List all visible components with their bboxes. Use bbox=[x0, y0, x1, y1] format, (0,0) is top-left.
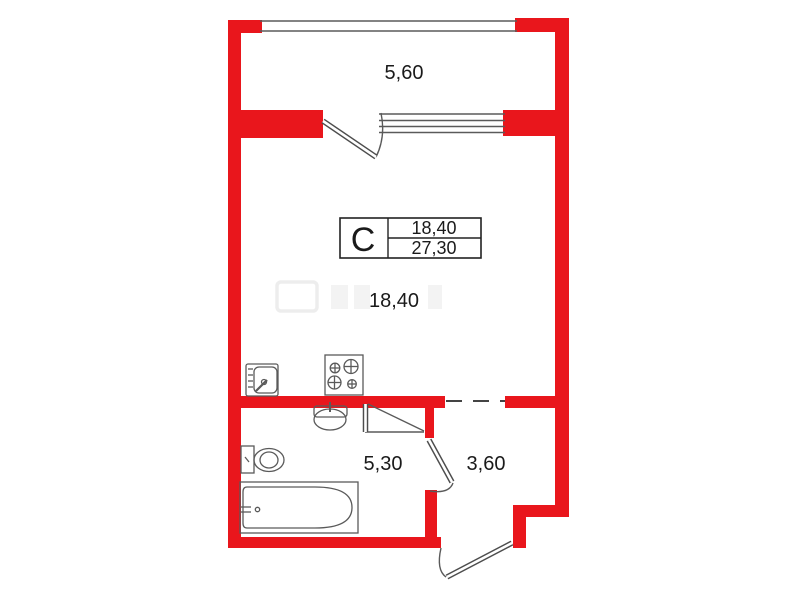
stove-fixture bbox=[325, 355, 363, 395]
floor-plan-drawing: С 18,40 27,30 5,60 18,40 5,30 3,60 bbox=[0, 0, 800, 600]
wall-balcony-left-block bbox=[228, 110, 323, 138]
toilet-fixture bbox=[241, 446, 284, 473]
floor-plan: С 18,40 27,30 5,60 18,40 5,30 3,60 bbox=[0, 0, 800, 600]
unit-info-table: С 18,40 27,30 bbox=[340, 218, 481, 259]
wall-left bbox=[228, 20, 241, 548]
hall-bathroom-door bbox=[429, 440, 453, 492]
washbasin-fixture bbox=[314, 402, 347, 430]
balcony-area-label: 5,60 bbox=[385, 62, 424, 84]
burner-large-1 bbox=[344, 360, 358, 374]
window bbox=[379, 114, 505, 133]
burner-small-2 bbox=[348, 380, 357, 389]
bathroom-area-label: 5,30 bbox=[364, 453, 403, 475]
bathtub-fixture bbox=[240, 482, 358, 533]
wall-window-block bbox=[503, 110, 555, 136]
studio-area-label: 18,40 bbox=[369, 290, 419, 312]
unit-type-label: С bbox=[351, 221, 376, 259]
unit-living-area: 18,40 bbox=[411, 218, 456, 238]
burner-small-1 bbox=[330, 363, 340, 373]
wall-right bbox=[555, 18, 569, 517]
wall-bath-divider-top bbox=[425, 396, 434, 438]
balcony-door bbox=[323, 113, 383, 157]
entrance-door bbox=[439, 543, 512, 577]
balcony-outline bbox=[260, 21, 517, 31]
hall-area-label: 3,60 bbox=[467, 453, 506, 475]
wall-hall-top bbox=[505, 396, 556, 408]
unit-total-area: 27,30 bbox=[411, 238, 456, 258]
wall-top-left-stub bbox=[228, 20, 262, 33]
bathroom-door bbox=[365, 404, 424, 432]
kitchen-sink-fixture bbox=[246, 364, 278, 396]
burner-large-2 bbox=[328, 376, 341, 389]
wall-entry-step-v bbox=[513, 505, 526, 548]
wall-bath-bottom bbox=[228, 537, 441, 548]
